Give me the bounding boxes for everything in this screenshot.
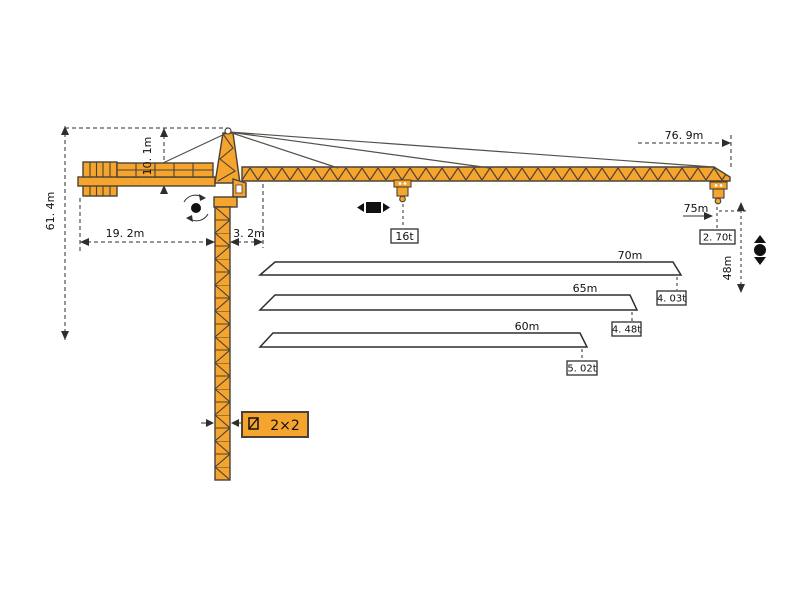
slewing-platform	[214, 197, 237, 207]
dim-label-hook-height: 48m	[721, 256, 734, 281]
dim-label-tip-radius: 75m	[684, 202, 709, 215]
trolley-travel-icon	[357, 202, 390, 213]
value-tip-load: 2. 70t	[703, 233, 732, 244]
value-max-load: 16t	[395, 230, 414, 243]
bar-60m	[260, 333, 597, 375]
diagram-canvas: 61. 4m 10. 1m 19. 2m 3. 2m 76. 9m 75m 2.…	[0, 0, 800, 600]
bar-length-70m: 70m	[618, 249, 643, 262]
jib	[242, 167, 730, 181]
bar-length-65m: 65m	[573, 282, 598, 295]
tower-head	[215, 133, 240, 183]
dim-label-overall-radius: 76. 9m	[665, 129, 704, 142]
trolley-tip	[710, 182, 727, 204]
dim-label-head-height: 10. 1m	[141, 137, 154, 176]
hook-tip	[715, 198, 721, 204]
dim-label-total-height: 61. 4m	[44, 192, 57, 231]
crane-diagram: 61. 4m 10. 1m 19. 2m 3. 2m 76. 9m 75m 2.…	[0, 0, 800, 600]
dim-label-jib-root: 3. 2m	[233, 227, 265, 240]
bar-65m	[260, 295, 641, 336]
hoisting-icon	[754, 235, 766, 265]
bar-capacity-70m: 4. 03t	[657, 294, 686, 305]
tower-mast	[215, 207, 230, 480]
bar-capacity-65m: 4. 48t	[612, 325, 641, 336]
trolley-mid	[394, 180, 411, 202]
slewing-icon	[184, 194, 208, 222]
hook-mid	[400, 196, 406, 202]
dim-label-counter-jib: 19. 2m	[106, 227, 145, 240]
value-mast-section: 2×2	[270, 418, 300, 434]
bar-capacity-60m: 5. 02t	[567, 364, 596, 375]
bar-length-60m: 60m	[515, 320, 540, 333]
tie-bars	[163, 128, 713, 168]
